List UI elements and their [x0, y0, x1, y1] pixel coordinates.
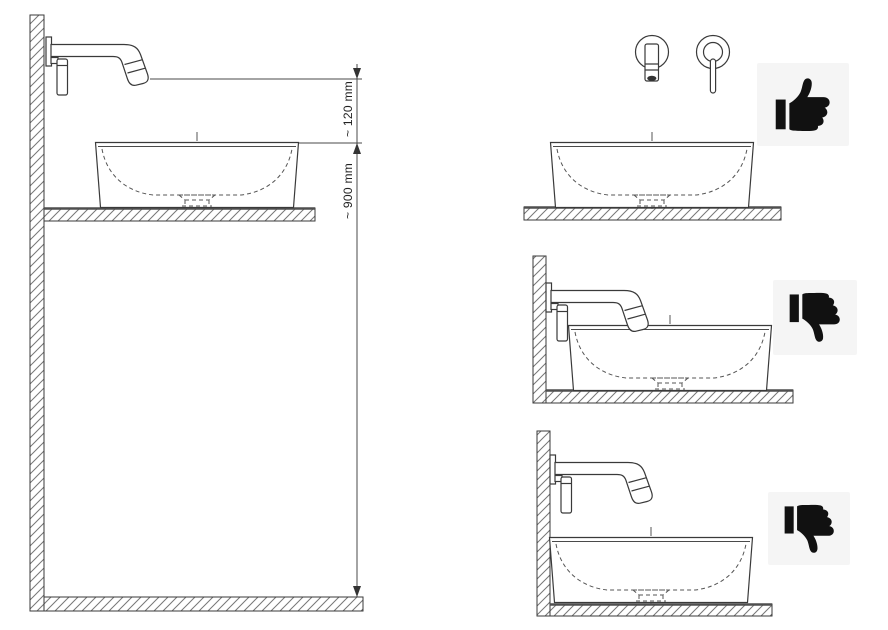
thumbs-down-box	[768, 492, 850, 565]
vessel-basin	[96, 132, 299, 212]
thumbs-down-box	[773, 280, 857, 355]
dimension-label-rim-to-floor: ~ 900 mm	[341, 163, 355, 219]
handle-front-view	[697, 36, 730, 94]
panel-front-view-example	[524, 36, 781, 221]
vessel-basin	[551, 132, 754, 212]
wall-mounted-faucet	[550, 455, 652, 513]
wall-mounted-faucet	[46, 37, 148, 95]
panel-spout-too-low-example	[533, 256, 793, 403]
vessel-basin	[550, 527, 753, 607]
line-art-layer	[0, 0, 888, 630]
thumbs-up-icon	[772, 76, 834, 133]
panel-main-dimension-drawing	[30, 15, 363, 611]
thumbs-down-icon	[781, 503, 838, 555]
panel-spout-too-high-example	[537, 431, 772, 616]
countertop-section	[44, 208, 315, 221]
thumbs-down-icon	[786, 291, 844, 344]
floor-section	[44, 597, 363, 611]
dimension-label-spout-to-rim: ~ 120 mm	[341, 81, 355, 137]
wall-section	[537, 431, 550, 616]
spout-front-view	[636, 36, 669, 82]
wall-section	[533, 256, 546, 403]
vessel-basin	[569, 315, 772, 395]
thumbs-up-box	[757, 63, 849, 146]
wall-section	[30, 15, 44, 611]
diagram-canvas: ~ 120 mm ~ 900 mm	[0, 0, 888, 630]
